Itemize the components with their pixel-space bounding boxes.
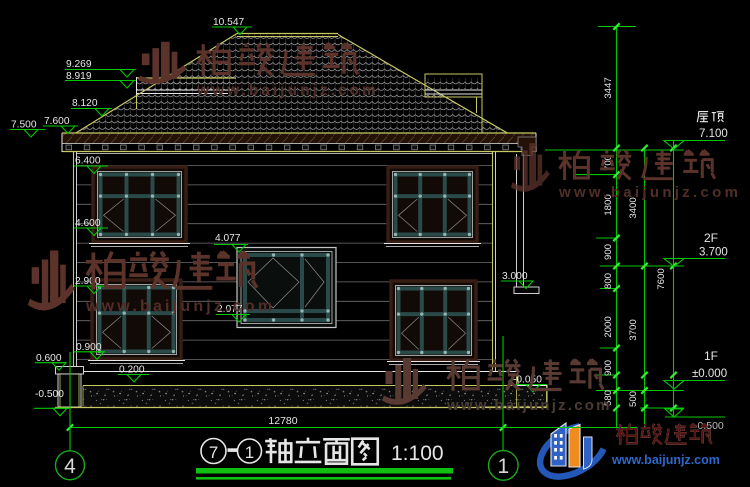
svg-text:1F: 1F [704,349,718,363]
svg-text:7.500: 7.500 [11,120,37,131]
svg-text:2F: 2F [704,231,718,245]
svg-text:2.900: 2.900 [75,276,101,287]
svg-text:0.200: 0.200 [119,365,145,376]
svg-text:10.547: 10.547 [213,17,244,28]
svg-text:2000: 2000 [603,316,614,337]
svg-text:900: 900 [603,244,614,260]
svg-text:1:100: 1:100 [391,442,444,465]
svg-text:3.000: 3.000 [502,271,528,282]
svg-text:4.077: 4.077 [215,233,241,244]
svg-text:1: 1 [497,455,509,478]
svg-text:7.100: 7.100 [699,128,728,140]
svg-text:3700: 3700 [628,319,639,340]
svg-text:www.baijunjz.com: www.baijunjz.com [558,184,741,201]
svg-text:±0.000: ±0.000 [692,368,727,380]
svg-text:900: 900 [603,360,614,376]
svg-text:-0.500: -0.500 [35,389,64,400]
svg-text:3.700: 3.700 [699,247,728,259]
svg-text:7600: 7600 [656,268,667,289]
svg-text:www.baijunjz.com: www.baijunjz.com [196,82,379,99]
svg-text:4.600: 4.600 [75,218,101,229]
svg-text:4: 4 [64,455,76,478]
svg-text:12780: 12780 [268,415,297,427]
svg-text:www.baijunjz.com: www.baijunjz.com [85,298,275,315]
svg-text:www.baijunjz.com: www.baijunjz.com [446,397,612,414]
svg-text:1: 1 [245,443,254,462]
svg-text:www.baijunjz.com: www.baijunjz.com [611,453,720,467]
svg-text:8.120: 8.120 [72,98,98,109]
svg-text:9.269: 9.269 [66,59,92,70]
svg-text:7.600: 7.600 [44,116,70,127]
svg-text:7: 7 [209,443,218,462]
svg-text:500: 500 [628,391,639,407]
svg-text:6.400: 6.400 [75,156,101,167]
svg-text:800: 800 [603,273,614,289]
svg-text:3447: 3447 [603,77,614,98]
